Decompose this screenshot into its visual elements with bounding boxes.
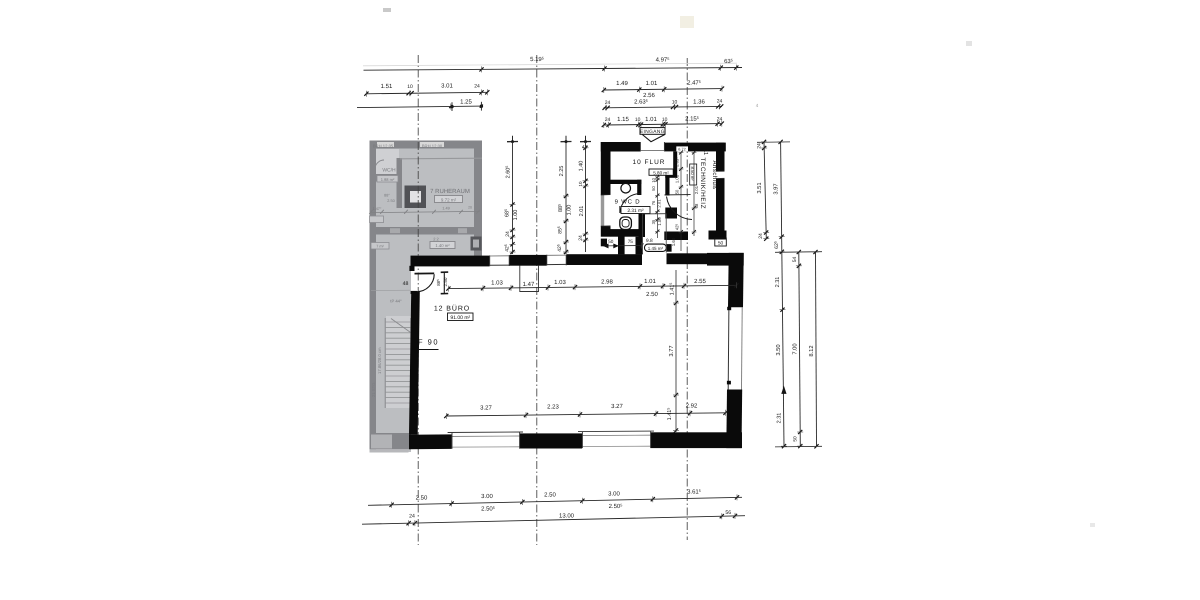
svg-text:24: 24 bbox=[717, 116, 723, 122]
svg-text:1.45 m²: 1.45 m² bbox=[648, 246, 664, 251]
svg-text:3.27: 3.27 bbox=[611, 403, 623, 410]
svg-text:2.56: 2.56 bbox=[643, 92, 655, 99]
svg-text:24: 24 bbox=[717, 99, 723, 105]
svg-text:2.31: 2.31 bbox=[777, 413, 783, 424]
svg-text:3.97: 3.97 bbox=[773, 183, 780, 194]
svg-text:3.50: 3.50 bbox=[775, 344, 782, 355]
svg-text:50: 50 bbox=[608, 239, 614, 244]
svg-text:35: 35 bbox=[651, 219, 656, 224]
svg-text:1.40: 1.40 bbox=[579, 161, 585, 172]
svg-text:68: 68 bbox=[694, 203, 699, 208]
svg-text:3.00: 3.00 bbox=[481, 493, 493, 500]
svg-text:24: 24 bbox=[474, 83, 480, 89]
svg-text:91.00 m²: 91.00 m² bbox=[450, 315, 470, 321]
svg-text:42: 42 bbox=[582, 145, 588, 151]
svg-text:1.05: 1.05 bbox=[657, 217, 662, 226]
svg-text:50: 50 bbox=[651, 186, 656, 191]
svg-text:48: 48 bbox=[403, 281, 409, 287]
svg-text:21 STG.: 21 STG. bbox=[371, 381, 376, 397]
svg-text:76: 76 bbox=[651, 200, 656, 205]
svg-text:24: 24 bbox=[758, 233, 764, 239]
svg-text:BRH 12.00: BRH 12.00 bbox=[422, 143, 443, 148]
svg-text:17.86/28.0 cm: 17.86/28.0 cm bbox=[377, 347, 382, 374]
svg-text:2.50: 2.50 bbox=[544, 492, 556, 499]
svg-text:9.72 m²: 9.72 m² bbox=[441, 197, 457, 202]
svg-text:13.00: 13.00 bbox=[559, 512, 575, 519]
svg-text:1.00: 1.00 bbox=[513, 210, 519, 221]
svg-text:2.01: 2.01 bbox=[694, 185, 699, 194]
svg-text:EINGANG: EINGANG bbox=[640, 129, 665, 135]
svg-text:BRH 12.05: BRH 12.05 bbox=[373, 143, 394, 148]
svg-text:3.00: 3.00 bbox=[608, 490, 620, 497]
svg-text:1.40 m²: 1.40 m² bbox=[435, 243, 450, 248]
svg-text:2.01: 2.01 bbox=[579, 206, 585, 217]
svg-text:2.23: 2.23 bbox=[547, 404, 559, 411]
svg-text:12 BÜRO: 12 BÜRO bbox=[434, 305, 470, 313]
svg-text:1.51: 1.51 bbox=[381, 83, 393, 90]
svg-text:10: 10 bbox=[651, 177, 656, 182]
svg-text:2.50: 2.50 bbox=[416, 494, 428, 501]
svg-text:2 2: 2 2 bbox=[433, 237, 439, 242]
svg-text:1.25: 1.25 bbox=[460, 99, 472, 106]
svg-text:1.03: 1.03 bbox=[554, 279, 566, 286]
svg-text:50: 50 bbox=[675, 189, 680, 194]
svg-text:7 RUHERAUM: 7 RUHERAUM bbox=[430, 188, 470, 195]
svg-text:1.03: 1.03 bbox=[491, 280, 503, 287]
svg-text:1.49: 1.49 bbox=[442, 207, 449, 211]
svg-text:2.31 m²: 2.31 m² bbox=[627, 208, 644, 214]
svg-text:tP 44°: tP 44° bbox=[390, 299, 402, 304]
svg-text:1.98 m²: 1.98 m² bbox=[381, 177, 395, 182]
svg-text:24: 24 bbox=[756, 143, 762, 149]
svg-text:10: 10 bbox=[407, 84, 413, 90]
svg-text:1.47: 1.47 bbox=[523, 281, 535, 288]
svg-text:88°: 88° bbox=[384, 194, 390, 198]
svg-text:2.50: 2.50 bbox=[443, 277, 448, 286]
svg-text:8.12: 8.12 bbox=[808, 345, 815, 356]
svg-text:7 m²: 7 m² bbox=[376, 245, 384, 249]
svg-text:3.27: 3.27 bbox=[480, 404, 492, 411]
svg-text:75: 75 bbox=[628, 239, 634, 244]
svg-text:9 WC D: 9 WC D bbox=[615, 199, 641, 206]
svg-text:1.00: 1.00 bbox=[567, 205, 573, 216]
svg-text:2.98: 2.98 bbox=[601, 279, 613, 286]
svg-text:TECHNIK/HEIZ: TECHNIK/HEIZ bbox=[699, 158, 706, 210]
svg-text:10 FLUR: 10 FLUR bbox=[632, 159, 665, 166]
svg-text:2.25: 2.25 bbox=[559, 166, 565, 177]
svg-text:1.01: 1.01 bbox=[646, 80, 658, 87]
svg-text:10: 10 bbox=[662, 117, 668, 123]
svg-text:5.80 m²: 5.80 m² bbox=[653, 170, 669, 175]
svg-text:1.01: 1.01 bbox=[644, 278, 656, 285]
svg-text:2.50: 2.50 bbox=[387, 199, 394, 203]
svg-text:24: 24 bbox=[505, 231, 511, 237]
svg-text:1.01: 1.01 bbox=[675, 174, 680, 183]
svg-text:1.49: 1.49 bbox=[616, 80, 628, 87]
svg-text:1.15: 1.15 bbox=[617, 116, 629, 123]
svg-text:56: 56 bbox=[725, 510, 731, 516]
svg-text:1.47°: 1.47° bbox=[373, 207, 382, 211]
svg-text:2.31: 2.31 bbox=[775, 277, 781, 288]
svg-text:50: 50 bbox=[793, 436, 799, 442]
svg-text:1.36: 1.36 bbox=[693, 98, 705, 105]
svg-text:24: 24 bbox=[578, 235, 584, 241]
svg-text:1.60: 1.60 bbox=[671, 237, 676, 246]
svg-text:7.00: 7.00 bbox=[792, 343, 799, 354]
svg-text:11: 11 bbox=[702, 149, 709, 156]
svg-text:10: 10 bbox=[635, 117, 641, 123]
svg-text:2.55: 2.55 bbox=[694, 278, 706, 285]
svg-text:10: 10 bbox=[672, 99, 678, 105]
svg-text:WC/H: WC/H bbox=[382, 168, 396, 174]
svg-text:10: 10 bbox=[578, 181, 583, 187]
svg-text:3.77: 3.77 bbox=[668, 345, 675, 356]
svg-text:24: 24 bbox=[409, 514, 415, 520]
svg-text:2.50: 2.50 bbox=[646, 291, 658, 298]
svg-text:50: 50 bbox=[718, 241, 724, 247]
svg-text:9.8: 9.8 bbox=[646, 238, 653, 244]
svg-text:3.01: 3.01 bbox=[441, 83, 453, 90]
svg-text:1.01: 1.01 bbox=[645, 116, 657, 123]
svg-text:2.92: 2.92 bbox=[686, 403, 698, 410]
svg-text:54: 54 bbox=[792, 257, 798, 263]
svg-text:24: 24 bbox=[605, 117, 611, 123]
svg-text:24: 24 bbox=[605, 100, 611, 106]
svg-text:F 90: F 90 bbox=[418, 338, 439, 347]
svg-text:Anschluß: Anschluß bbox=[711, 161, 718, 190]
svg-text:3.51: 3.51 bbox=[756, 182, 763, 193]
svg-text:20: 20 bbox=[468, 205, 472, 209]
svg-text:2.01: 2.01 bbox=[657, 199, 662, 208]
